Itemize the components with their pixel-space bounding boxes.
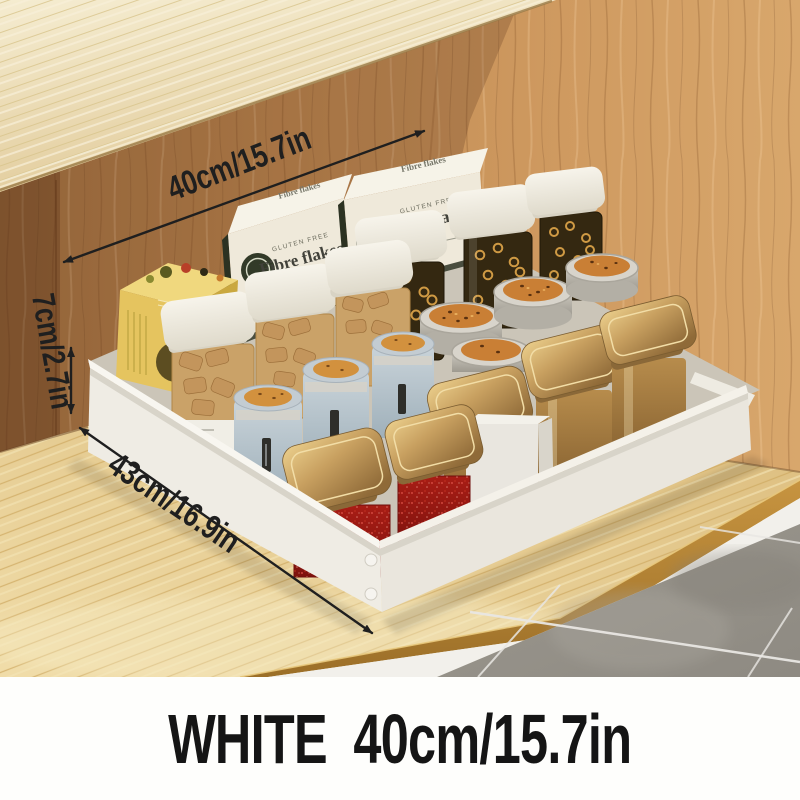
product-image: GLUTEN FREE Fibre flakes Fibre flakes GL… — [0, 0, 800, 800]
drawer-rivet — [365, 554, 377, 566]
caption-text: WHITE 40cm/15.7in — [168, 699, 631, 779]
spice-tin-2 — [494, 277, 572, 330]
caption-bar: WHITE 40cm/15.7in — [0, 677, 800, 800]
spice-tin-3 — [566, 254, 638, 303]
spice-tin-4 — [452, 338, 530, 373]
scene-photo: GLUTEN FREE Fibre flakes Fibre flakes GL… — [0, 0, 800, 677]
drawer-rivet — [365, 588, 377, 600]
